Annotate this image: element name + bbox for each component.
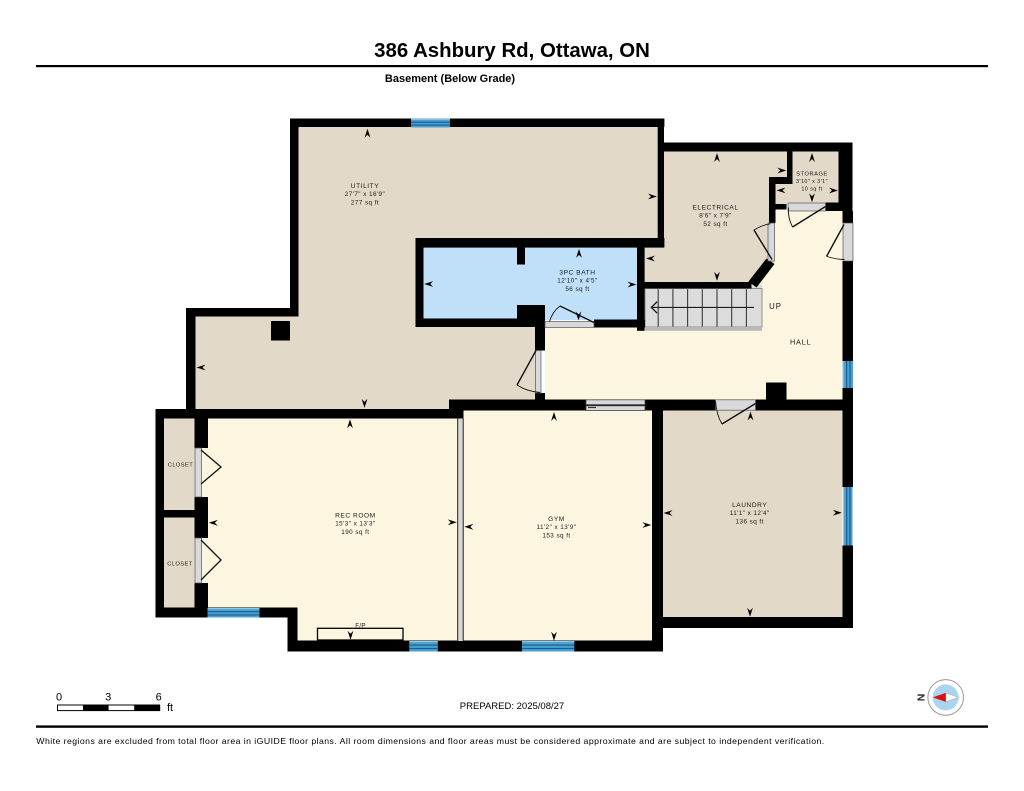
svg-text:3'10" x 3'1": 3'10" x 3'1" [796,179,828,185]
svg-text:3PC BATH: 3PC BATH [559,270,595,277]
svg-text:136 sq ft: 136 sq ft [736,518,764,525]
svg-text:HALL: HALL [790,338,811,347]
svg-text:REC ROOM: REC ROOM [335,513,376,520]
svg-text:11'1" x 12'4": 11'1" x 12'4" [730,510,770,517]
svg-text:UP: UP [769,302,782,311]
svg-text:6: 6 [156,692,162,704]
svg-text:27'7" x 16'9": 27'7" x 16'9" [345,191,385,198]
svg-text:386 Ashbury Rd, Ottawa, ON: 386 Ashbury Rd, Ottawa, ON [374,40,650,62]
svg-text:STORAGE: STORAGE [796,172,828,178]
svg-text:12'10" x 4'5": 12'10" x 4'5" [557,278,597,285]
svg-text:ft: ft [167,702,173,714]
svg-text:CLOSET: CLOSET [167,561,193,567]
svg-text:10 sq ft: 10 sq ft [801,186,822,192]
svg-text:White regions are excluded fro: White regions are excluded from total fl… [36,736,824,746]
svg-text:Basement (Below Grade): Basement (Below Grade) [385,73,516,85]
svg-text:190 sq ft: 190 sq ft [341,529,369,536]
svg-text:ELECTRICAL: ELECTRICAL [692,205,738,212]
svg-text:UTILITY: UTILITY [351,183,379,190]
svg-text:CLOSET: CLOSET [168,462,194,468]
svg-text:153 sq ft: 153 sq ft [542,532,570,539]
svg-text:0: 0 [56,692,62,704]
svg-text:GYM: GYM [548,516,565,523]
svg-text:15'3" x 13'3": 15'3" x 13'3" [335,521,375,528]
svg-text:PREPARED: 2025/08/27: PREPARED: 2025/08/27 [460,701,564,712]
svg-text:11'2" x 13'9": 11'2" x 13'9" [537,524,577,531]
svg-text:52 sq ft: 52 sq ft [703,221,727,228]
svg-text:F/P: F/P [355,622,366,629]
svg-text:N: N [916,694,928,702]
svg-text:277 sq ft: 277 sq ft [351,199,379,206]
svg-text:3: 3 [105,692,111,704]
svg-text:56 sq ft: 56 sq ft [565,286,589,293]
svg-text:LAUNDRY: LAUNDRY [732,502,767,509]
svg-text:8'6" x 7'9": 8'6" x 7'9" [699,213,731,220]
